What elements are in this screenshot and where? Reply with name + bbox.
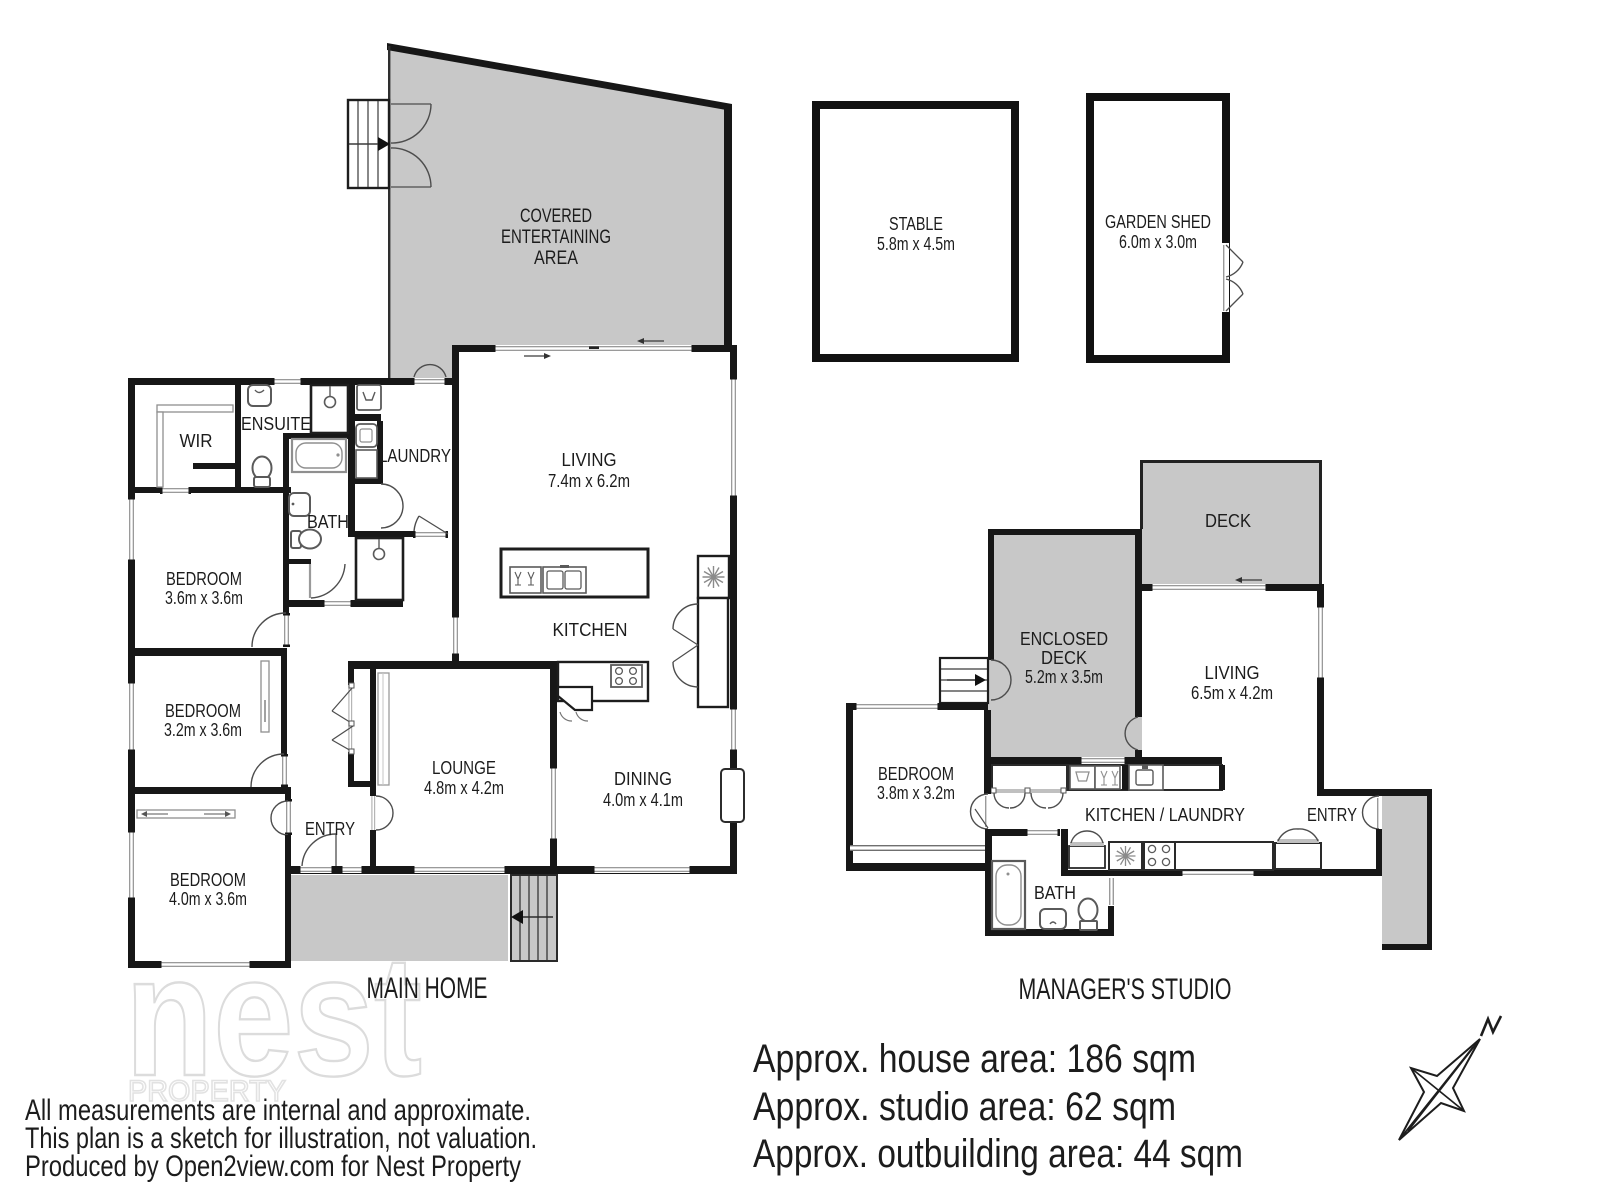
svg-text:AREA: AREA [534,248,578,269]
svg-text:ENSUITE: ENSUITE [241,414,311,434]
svg-text:ENTERTAINING: ENTERTAINING [501,227,611,248]
svg-text:DECK: DECK [1205,511,1251,531]
svg-text:WIR: WIR [180,431,213,451]
svg-text:6.0m x 3.0m: 6.0m x 3.0m [1119,232,1197,252]
svg-text:Produced by Open2view.com for: Produced by Open2view.com for Nest Prope… [25,1150,521,1183]
svg-text:BEDROOM: BEDROOM [166,569,242,589]
svg-text:7.4m x 6.2m: 7.4m x 6.2m [548,471,630,491]
svg-text:STABLE: STABLE [889,214,943,234]
svg-text:4.0m x 3.6m: 4.0m x 3.6m [169,889,247,909]
svg-text:4.0m x 4.1m: 4.0m x 4.1m [603,790,683,810]
svg-text:MANAGER'S STUDIO: MANAGER'S STUDIO [1019,973,1232,1006]
svg-text:LIVING: LIVING [1205,663,1260,683]
svg-text:Approx. house area: 186 sqm: Approx. house area: 186 sqm [753,1037,1196,1081]
svg-text:4.8m x 4.2m: 4.8m x 4.2m [424,778,504,798]
svg-text:ENCLOSED: ENCLOSED [1020,629,1108,649]
svg-text:MAIN HOME: MAIN HOME [367,972,488,1005]
svg-text:3.8m x 3.2m: 3.8m x 3.2m [877,783,955,803]
svg-text:COVERED: COVERED [520,206,592,227]
svg-text:6.5m x 4.2m: 6.5m x 4.2m [1191,683,1273,703]
svg-text:Approx. outbuilding area: 44 s: Approx. outbuilding area: 44 sqm [753,1132,1243,1176]
svg-text:3.2m x 3.6m: 3.2m x 3.6m [164,720,242,740]
svg-text:BATH: BATH [307,512,349,532]
svg-text:ENTRY: ENTRY [1307,805,1357,825]
svg-text:LOUNGE: LOUNGE [432,758,496,778]
svg-text:KITCHEN / LAUNDRY: KITCHEN / LAUNDRY [1085,805,1245,825]
svg-text:3.6m x 3.6m: 3.6m x 3.6m [165,588,243,608]
svg-text:BEDROOM: BEDROOM [170,870,246,890]
svg-text:BATH: BATH [1034,883,1076,903]
svg-text:ENTRY: ENTRY [305,819,355,839]
svg-text:DECK: DECK [1041,648,1087,668]
svg-text:DINING: DINING [614,769,672,789]
svg-text:LAUNDRY: LAUNDRY [379,446,451,466]
svg-text:BEDROOM: BEDROOM [165,701,241,721]
svg-text:Approx. studio area: 62 sqm: Approx. studio area: 62 sqm [753,1085,1176,1129]
svg-text:KITCHEN: KITCHEN [553,620,628,640]
svg-text:5.2m x 3.5m: 5.2m x 3.5m [1025,667,1103,687]
svg-text:BEDROOM: BEDROOM [878,764,954,784]
svg-text:LIVING: LIVING [562,450,617,470]
svg-text:5.8m x 4.5m: 5.8m x 4.5m [877,234,955,254]
svg-text:GARDEN SHED: GARDEN SHED [1105,212,1211,232]
